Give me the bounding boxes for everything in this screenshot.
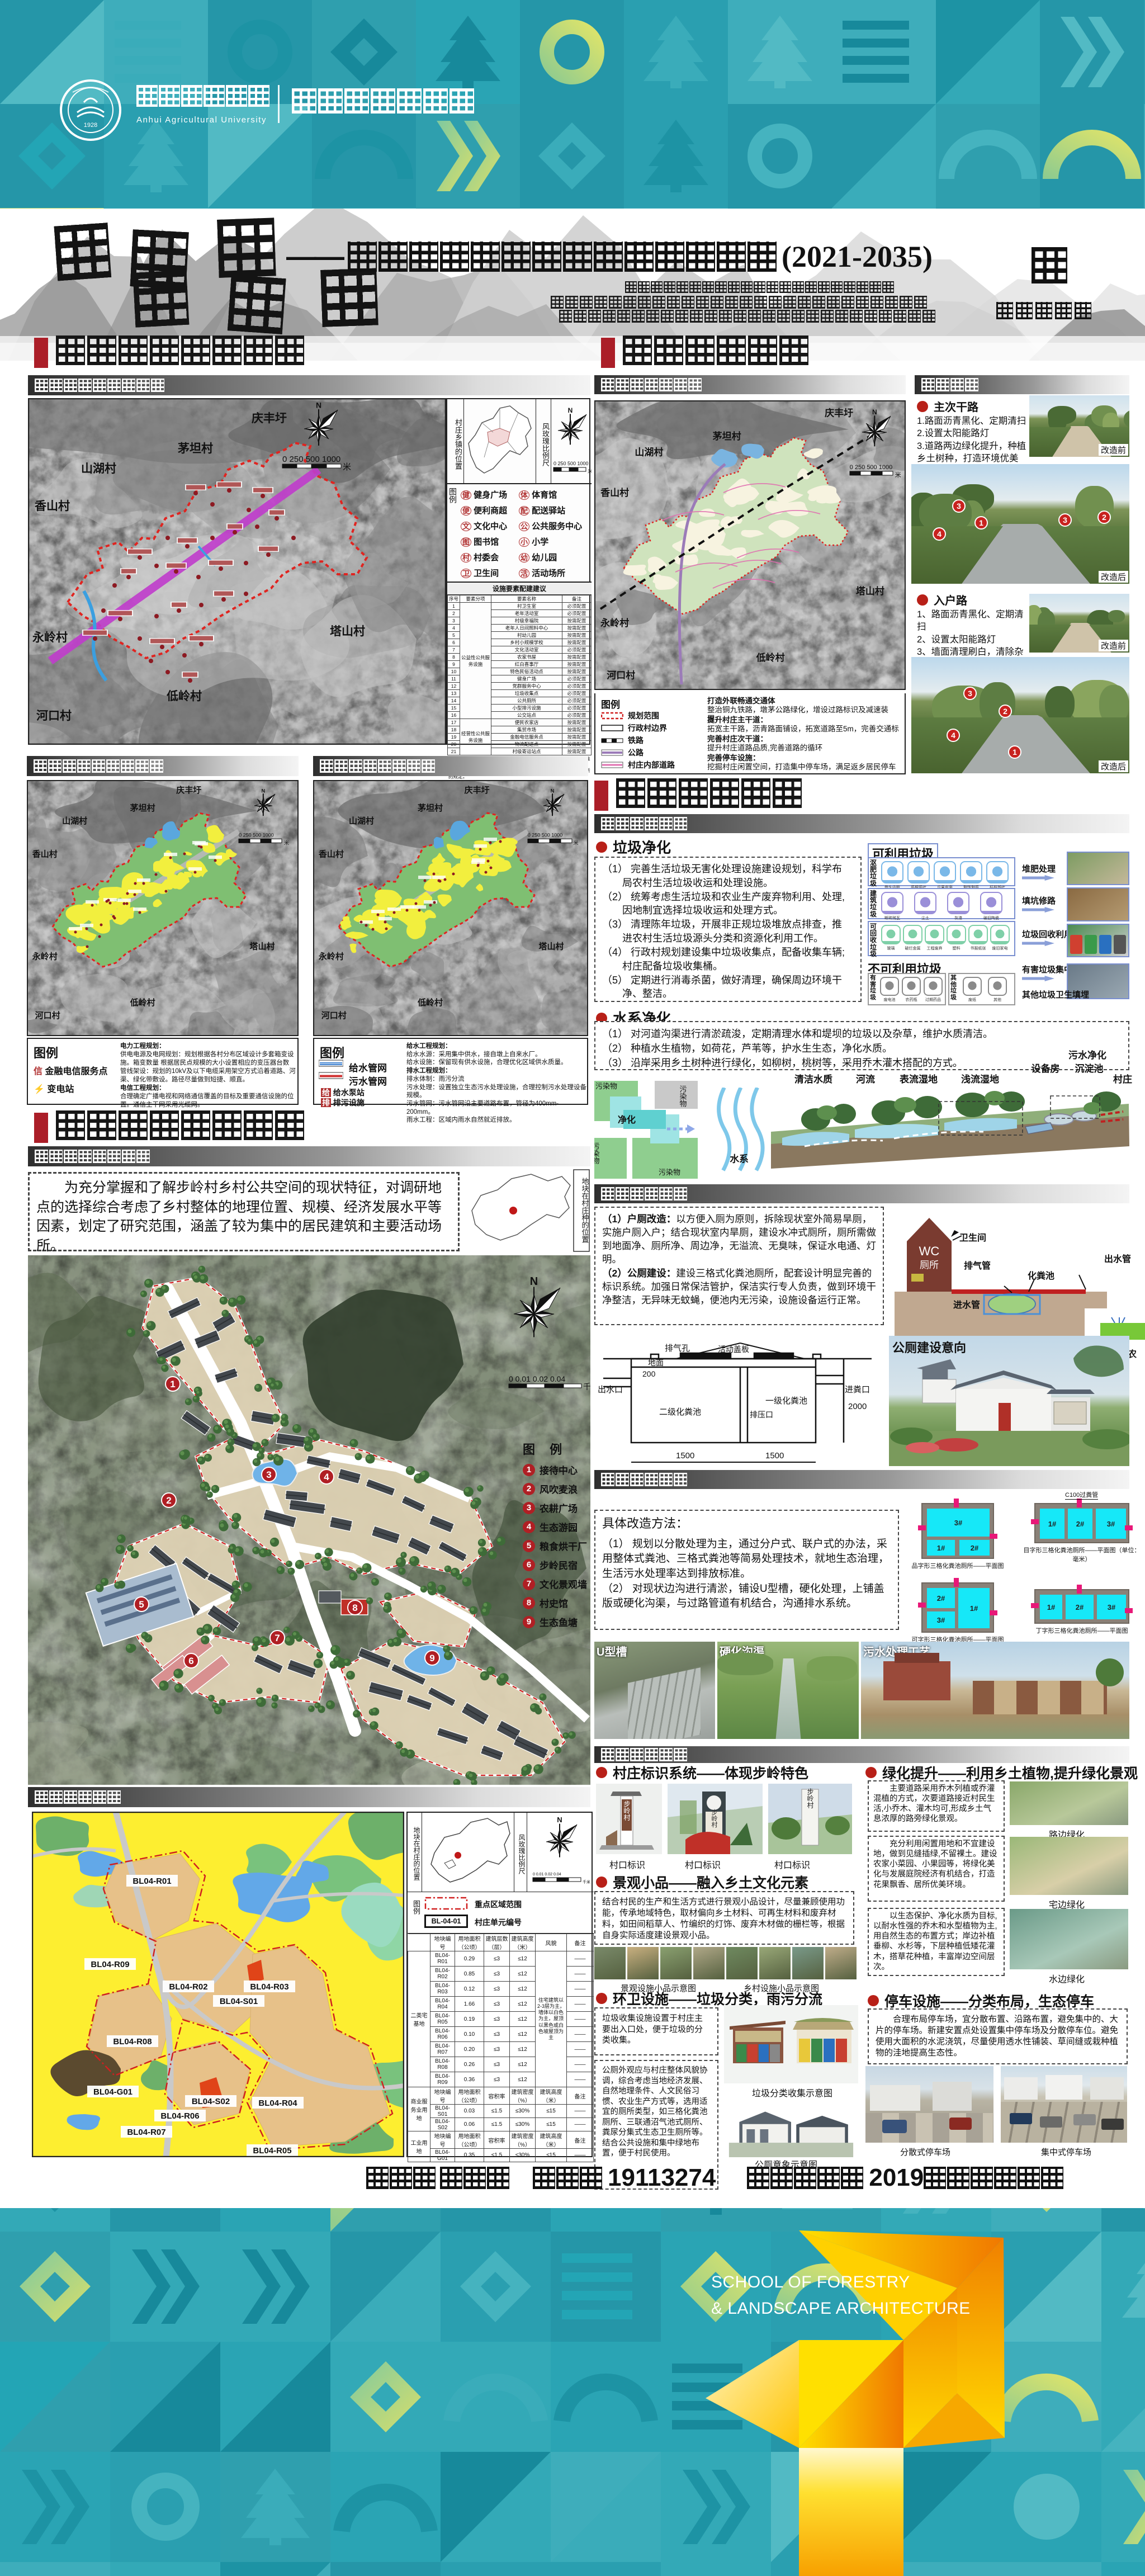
- svg-text:山湖村: 山湖村: [62, 816, 87, 826]
- svg-text:5: 5: [139, 1599, 144, 1610]
- svg-text:污染物: 污染物: [659, 1168, 680, 1176]
- svg-text:1928: 1928: [84, 122, 97, 129]
- svg-text:塔山村: 塔山村: [856, 585, 884, 597]
- svg-text:0 250 500 1000: 0 250 500 1000: [850, 464, 892, 471]
- svg-text:米: 米: [343, 462, 351, 472]
- svg-text:步岭村: 步岭村: [806, 1788, 814, 1808]
- svg-text:庆丰圩: 庆丰圩: [465, 785, 490, 795]
- svg-text:9: 9: [429, 1653, 434, 1663]
- svg-text:N: N: [557, 1816, 562, 1824]
- svg-text:WC: WC: [919, 1244, 940, 1258]
- svg-text:0 0.01 0.02 0.04: 0 0.01 0.02 0.04: [533, 1873, 561, 1877]
- svg-text:1500: 1500: [676, 1451, 694, 1460]
- svg-text:塔山村: 塔山村: [250, 941, 275, 951]
- svg-text:净化: 净化: [618, 1114, 636, 1125]
- svg-text:2: 2: [166, 1495, 171, 1506]
- svg-text:8: 8: [352, 1603, 357, 1613]
- svg-text:茅坦村: 茅坦村: [418, 803, 443, 813]
- svg-text:N: N: [568, 407, 573, 414]
- svg-text:排压口: 排压口: [750, 1410, 773, 1419]
- svg-text:污染物: 污染物: [594, 1142, 600, 1165]
- svg-text:0 0.01 0.02 0.04: 0 0.01 0.02 0.04: [509, 1374, 565, 1383]
- svg-text:4: 4: [324, 1472, 329, 1482]
- svg-text:河口村: 河口村: [35, 1010, 60, 1020]
- svg-text:1: 1: [170, 1379, 175, 1389]
- svg-text:2000: 2000: [848, 1402, 867, 1411]
- svg-text:米: 米: [284, 839, 289, 845]
- svg-text:步岭村: 步岭村: [711, 1809, 718, 1827]
- svg-text:永岭村: 永岭村: [318, 952, 344, 962]
- svg-text:永岭村: 永岭村: [32, 631, 68, 644]
- svg-text:永岭村: 永岭村: [600, 617, 629, 628]
- svg-text:0 250 500 1000: 0 250 500 1000: [553, 461, 589, 466]
- svg-text:米: 米: [573, 839, 578, 845]
- svg-text:厕所: 厕所: [920, 1260, 939, 1270]
- svg-text:河口村: 河口村: [607, 669, 635, 680]
- svg-text:活动盖板: 活动盖板: [718, 1345, 749, 1354]
- svg-text:N: N: [530, 1275, 538, 1288]
- svg-text:庆丰圩: 庆丰圩: [825, 407, 853, 418]
- svg-text:茅坦村: 茅坦村: [130, 803, 155, 813]
- svg-text:地面: 地面: [648, 1358, 664, 1367]
- svg-text:河口村: 河口村: [36, 709, 72, 722]
- svg-text:一级化粪池: 一级化粪池: [765, 1396, 807, 1406]
- svg-text:出水口: 出水口: [598, 1385, 623, 1395]
- svg-text:BL04-S01: BL04-S01: [220, 1997, 258, 2006]
- svg-text:低岭村: 低岭村: [130, 998, 155, 1008]
- svg-text:污染物: 污染物: [595, 1082, 617, 1090]
- svg-text:永岭村: 永岭村: [32, 952, 58, 962]
- svg-text:N: N: [551, 788, 555, 794]
- svg-text:千米: 千米: [583, 1879, 590, 1884]
- svg-text:BL04-R06: BL04-R06: [160, 2111, 199, 2121]
- svg-text:香山村: 香山村: [600, 487, 629, 498]
- svg-text:千米: 千米: [583, 1382, 590, 1391]
- svg-text:山湖村: 山湖村: [81, 462, 116, 475]
- svg-text:污染物: 污染物: [679, 1085, 687, 1108]
- svg-text:BL04-R03: BL04-R03: [250, 1982, 288, 1992]
- svg-text:庆丰圩: 庆丰圩: [176, 785, 201, 795]
- svg-text:0 250 500 1000: 0 250 500 1000: [239, 832, 274, 838]
- svg-text:米: 米: [895, 471, 901, 479]
- svg-text:1500: 1500: [765, 1451, 784, 1460]
- svg-text:排气孔: 排气孔: [665, 1344, 690, 1353]
- svg-text:N: N: [262, 788, 266, 794]
- svg-text:香山村: 香山村: [32, 849, 58, 859]
- svg-text:米: 米: [588, 468, 592, 474]
- svg-text:低岭村: 低岭村: [417, 998, 443, 1008]
- svg-text:低岭村: 低岭村: [756, 652, 785, 663]
- svg-text:茅坦村: 茅坦村: [713, 431, 741, 442]
- svg-text:二级化粪池: 二级化粪池: [659, 1407, 701, 1417]
- svg-text:N: N: [872, 408, 877, 416]
- svg-text:BL04-R08: BL04-R08: [113, 2037, 152, 2046]
- svg-text:低岭村: 低岭村: [166, 689, 202, 703]
- svg-text:香山村: 香山村: [35, 499, 70, 513]
- svg-text:BL04-R07: BL04-R07: [127, 2128, 165, 2137]
- svg-text:6: 6: [188, 1656, 193, 1666]
- svg-text:茅坦村: 茅坦村: [178, 442, 213, 455]
- svg-text:塔山村: 塔山村: [538, 941, 564, 951]
- svg-text:河口村: 河口村: [321, 1010, 347, 1020]
- svg-text:山湖村: 山湖村: [349, 816, 374, 826]
- svg-text:地块在村庄种的位置: 地块在村庄种的位置: [581, 1178, 589, 1243]
- svg-text:200: 200: [642, 1369, 656, 1378]
- svg-text:步岭村: 步岭村: [623, 1800, 631, 1821]
- svg-text:0 250 500 1000: 0 250 500 1000: [282, 455, 340, 464]
- svg-text:BL04-R02: BL04-R02: [169, 1982, 207, 1992]
- svg-text:BL04-R04: BL04-R04: [258, 2098, 297, 2108]
- svg-text:BL04-R09: BL04-R09: [91, 1960, 129, 1969]
- svg-text:山湖村: 山湖村: [635, 446, 663, 457]
- svg-text:BL04-G01: BL04-G01: [93, 2087, 133, 2097]
- svg-text:塔山村: 塔山村: [330, 625, 365, 638]
- svg-text:7: 7: [275, 1633, 280, 1643]
- svg-text:BL04-R05: BL04-R05: [253, 2146, 291, 2156]
- svg-text:庆丰圩: 庆丰圩: [252, 412, 287, 425]
- svg-text:BL04-S02: BL04-S02: [192, 2097, 230, 2106]
- svg-text:0 250 500 1000: 0 250 500 1000: [528, 832, 563, 838]
- svg-text:水系: 水系: [730, 1153, 749, 1164]
- svg-text:BL04-R01: BL04-R01: [133, 1877, 171, 1886]
- svg-text:香山村: 香山村: [319, 849, 344, 859]
- svg-text:3: 3: [266, 1469, 271, 1480]
- svg-text:进粪口: 进粪口: [845, 1385, 870, 1395]
- svg-text:N: N: [316, 400, 321, 409]
